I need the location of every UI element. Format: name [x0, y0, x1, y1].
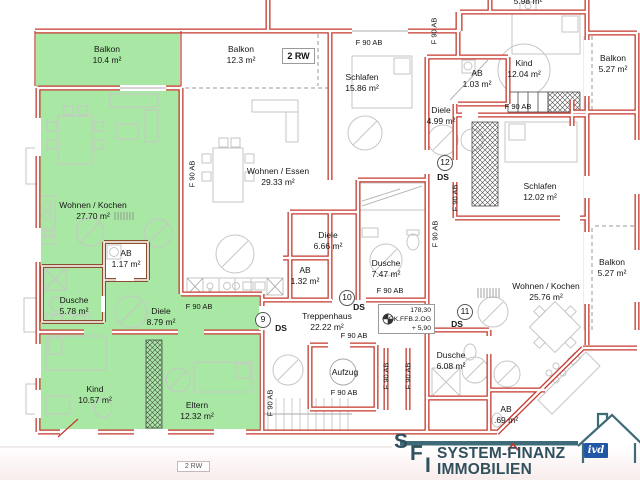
logo-line2: IMMOBILIEN — [437, 462, 532, 478]
floor-plan-page: Balkon 10.4 m² Balkon 12.3 m² Wohnen / K… — [0, 0, 640, 480]
room-name: Treppenhaus — [302, 311, 352, 322]
room-label-ab-c: AB 1.03 m² — [463, 68, 492, 90]
room-name: Dusche — [372, 258, 401, 269]
room-name: Wohnen / Kochen — [59, 200, 126, 211]
fire-rating-label: F 90 AB — [505, 102, 532, 111]
room-name: Eltern — [180, 400, 214, 411]
ds-label: DS — [451, 319, 463, 329]
room-name: Balkon — [599, 53, 628, 64]
room-area: 5.27 m² — [599, 64, 628, 75]
fire-rating-label: F 90 AB — [186, 302, 213, 311]
room-area: 1.03 m² — [463, 79, 492, 90]
fire-rating-label: F 90 AB — [356, 38, 383, 47]
room-area: 1.17 m² — [112, 259, 141, 270]
room-label-dusche-d: Dusche 6.08 m² — [437, 350, 466, 372]
room-area: 12.02 m² — [523, 192, 557, 203]
ds-label: DS — [275, 323, 287, 333]
room-name: Schlafen — [345, 72, 379, 83]
room-area: 12.3 m² — [227, 55, 256, 66]
fire-rating-label: F 90 AB — [331, 388, 358, 397]
room-area: 10.57 m² — [78, 395, 112, 406]
room-name: Wohnen / Essen — [247, 166, 309, 177]
room-name: Schlafen — [523, 181, 557, 192]
room-name: AB — [494, 404, 518, 415]
room-name: AB — [112, 248, 141, 259]
fire-rating-label: F 90 AB — [341, 331, 368, 340]
room-area: 8.79 m² — [147, 317, 176, 328]
room-label-ab-d: AB .69 m² — [494, 404, 518, 426]
room-label-aufzug: Aufzug — [332, 367, 358, 378]
room-name: Kind — [507, 58, 541, 69]
benchmark-icon — [382, 313, 395, 326]
fire-rating-label-vertical: F 90 AB — [404, 363, 413, 390]
room-label-dusche-b: Dusche 7.47 m² — [372, 258, 401, 280]
room-label-kind-a: Kind 10.57 m² — [78, 384, 112, 406]
stair-number-9: 9 — [255, 312, 271, 328]
elevation-box: 178,30 OK.FFB.2.OG + 5,90 — [378, 304, 435, 334]
stair-number-11: 11 — [457, 304, 473, 320]
room-label-balkon-b: Balkon 12.3 m² — [227, 44, 256, 66]
room-name: Balkon — [598, 257, 627, 268]
room-name: Kind — [78, 384, 112, 395]
room-name: AB — [463, 68, 492, 79]
room-label-ab-b: AB 1.32 m² — [291, 265, 320, 287]
logo-letter-i: I — [425, 456, 431, 476]
room-name: Dusche — [437, 350, 466, 361]
ds-label: DS — [353, 302, 365, 312]
room-label-schlafen-d: Schlafen 12.02 m² — [523, 181, 557, 203]
room-name: Balkon — [227, 44, 256, 55]
room-area: 5.78 m² — [60, 306, 89, 317]
room-label-wohnen-essen-b: Wohnen / Essen 29.33 m² — [247, 166, 309, 188]
room-area: 27.70 m² — [59, 211, 126, 222]
room-label-balkon-d: Balkon 5.27 m² — [598, 257, 627, 279]
room-label-eltern-a: Eltern 12.32 m² — [180, 400, 214, 422]
room-area: 4.99 m² — [427, 116, 456, 127]
rw-box-bottom: 2 RW — [177, 461, 210, 472]
logo-line1: SYSTEM-FINANZ — [437, 446, 565, 462]
fire-rating-label-vertical: F 90 AB — [382, 363, 391, 390]
room-area: .69 m² — [494, 415, 518, 426]
room-name: AB — [291, 265, 320, 276]
room-name: Diele — [147, 306, 176, 317]
stair-number-12: 12 — [437, 155, 453, 171]
room-label-diele-c: Diele 4.99 m² — [427, 105, 456, 127]
rw-box: 2 RW — [282, 48, 315, 64]
room-label-balkon-a: Balkon 10.4 m² — [93, 44, 122, 66]
room-label-dusche-a: Dusche 5.78 m² — [60, 295, 89, 317]
room-label-diele-b: Diele 6.66 m² — [314, 230, 343, 252]
ivd-badge: ivd — [584, 443, 608, 458]
room-label-treppenhaus: Treppenhaus 22.22 m² — [302, 311, 352, 333]
fire-rating-label-vertical: F 90 AB — [188, 161, 197, 188]
room-label-schlafen-c: Schlafen 15.86 m² — [345, 72, 379, 94]
room-area: 15.86 m² — [345, 83, 379, 94]
room-area: 6.08 m² — [437, 361, 466, 372]
fire-rating-label-vertical: F 90 AB — [266, 390, 275, 417]
room-area: 25.76 m² — [512, 292, 579, 303]
room-name: Aufzug — [332, 367, 358, 378]
room-label-ab-a: AB 1.17 m² — [112, 248, 141, 270]
room-area: 12.04 m² — [507, 69, 541, 80]
ds-label: DS — [437, 172, 449, 182]
room-name: Diele — [314, 230, 343, 241]
room-label-kind-c: Kind 12.04 m² — [507, 58, 541, 80]
room-name: Balkon — [93, 44, 122, 55]
fire-rating-label-vertical: F 90 AB — [451, 185, 460, 212]
room-label-wohnen-kochen-d: Wohnen / Kochen 25.76 m² — [512, 281, 579, 303]
room-area: 5.27 m² — [598, 268, 627, 279]
logo-letter-f: F — [410, 444, 423, 464]
fire-rating-label-vertical: F 90 AB — [430, 18, 439, 45]
room-area: 7.47 m² — [372, 269, 401, 280]
room-name: Diele — [427, 105, 456, 116]
room-area: 6.66 m² — [314, 241, 343, 252]
room-area: 29.33 m² — [247, 177, 309, 188]
room-label-partial-top: 5.98 m² — [514, 0, 543, 6]
room-area: 10.4 m² — [93, 55, 122, 66]
fire-rating-label: F 90 AB — [377, 286, 404, 295]
room-name: Dusche — [60, 295, 89, 306]
logo-letter-s: S — [394, 432, 408, 452]
room-area: 12.32 m² — [180, 411, 214, 422]
room-area: 1.32 m² — [291, 276, 320, 287]
fire-rating-label-vertical: F 90 AB — [431, 221, 440, 248]
room-name: Wohnen / Kochen — [512, 281, 579, 292]
room-label-diele-a: Diele 8.79 m² — [147, 306, 176, 328]
room-label-balkon-c: Balkon 5.27 m² — [599, 53, 628, 75]
room-label-wohnen-kochen-a: Wohnen / Kochen 27.70 m² — [59, 200, 126, 222]
